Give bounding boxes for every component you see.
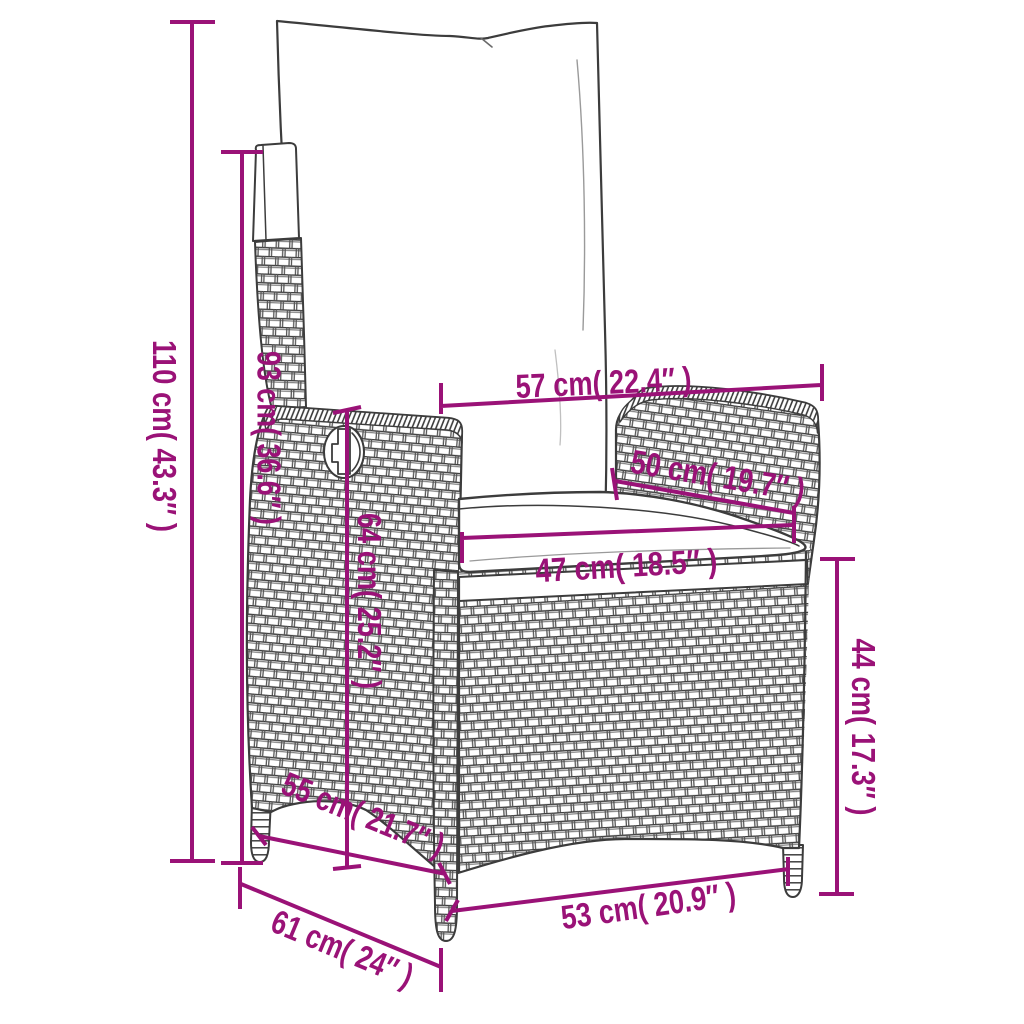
svg-text:44 cm( 17.3″ ): 44 cm( 17.3″ ) <box>844 639 881 816</box>
svg-text:93 cm( 36.6″ ): 93 cm( 36.6″ ) <box>250 351 287 525</box>
svg-text:110 cm( 43.3″ ): 110 cm( 43.3″ ) <box>145 340 182 532</box>
svg-text:64 cm( 25.2″ ): 64 cm( 25.2″ ) <box>350 513 387 689</box>
